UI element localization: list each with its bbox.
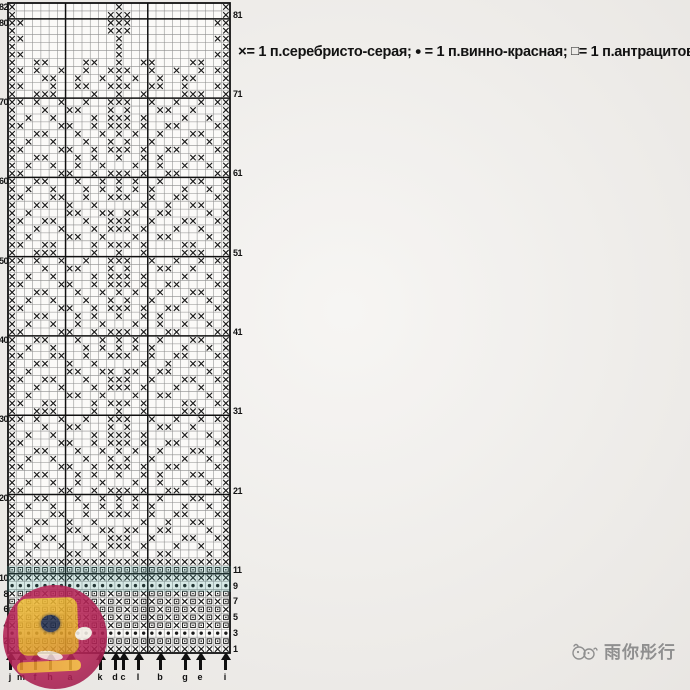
chart-row bbox=[10, 20, 229, 25]
legend-item-anthracite: □= 1 п.антрацитовая bbox=[571, 44, 690, 60]
chart-row bbox=[10, 250, 229, 255]
chart-row bbox=[10, 290, 229, 295]
chart-row bbox=[10, 433, 229, 438]
chart-row bbox=[10, 464, 229, 469]
legend-label-anthracite: = 1 п.антрацитовая bbox=[579, 44, 690, 60]
left-row-number: 8 bbox=[0, 590, 8, 598]
chart-row bbox=[10, 488, 229, 493]
chart-row bbox=[10, 274, 229, 279]
left-row-number: 20 bbox=[0, 494, 8, 502]
chart-row bbox=[10, 195, 229, 200]
right-row-number: 71 bbox=[233, 90, 242, 98]
chart-row bbox=[10, 393, 229, 398]
legend-item-wine: • = 1 п.винно-красная; bbox=[415, 44, 567, 60]
watermark: 雨你彤行 bbox=[570, 638, 676, 663]
right-row-number: 9 bbox=[233, 582, 238, 590]
chart-row bbox=[10, 68, 229, 73]
chart-row bbox=[10, 282, 229, 287]
left-row-number: 60 bbox=[0, 177, 8, 185]
chart-row bbox=[10, 504, 229, 509]
chart-row bbox=[10, 330, 229, 335]
chart-row bbox=[10, 512, 229, 517]
chart-row bbox=[10, 171, 229, 176]
chart-row bbox=[10, 187, 229, 192]
chart-row bbox=[10, 242, 229, 247]
chart-row bbox=[10, 345, 229, 350]
chart-row bbox=[10, 139, 229, 144]
size-letter: c bbox=[120, 672, 125, 682]
chart-row bbox=[10, 227, 229, 232]
chart-row bbox=[10, 528, 229, 533]
chart-row bbox=[10, 108, 229, 113]
chart-row bbox=[10, 425, 229, 430]
right-row-number: 7 bbox=[233, 597, 238, 605]
chart-grid-svg bbox=[7, 2, 231, 654]
chart-row bbox=[10, 353, 229, 358]
circular-logo-sticker bbox=[3, 585, 107, 689]
grid-lines-thin bbox=[8, 3, 230, 653]
left-row-number: 70 bbox=[0, 98, 8, 106]
left-row-number: 40 bbox=[0, 336, 8, 344]
color-legend: ×= 1 п.серебристо-серая; • = 1 п.винно-к… bbox=[238, 41, 688, 61]
sticker-dark-center bbox=[41, 615, 60, 632]
legend-item-silver: ×= 1 п.серебристо-серая; bbox=[238, 44, 412, 60]
chart-row bbox=[10, 219, 229, 224]
chart-row bbox=[10, 131, 229, 136]
chart-row bbox=[10, 5, 229, 10]
chart-row bbox=[10, 552, 229, 557]
chart-row bbox=[10, 76, 229, 81]
left-row-number: 30 bbox=[0, 415, 8, 423]
chart-row bbox=[10, 472, 229, 477]
chart-row bbox=[10, 377, 229, 382]
chart-row bbox=[10, 155, 229, 160]
chart-row bbox=[10, 409, 229, 414]
chart-row bbox=[10, 12, 229, 17]
chart-row bbox=[10, 480, 229, 485]
right-row-number: 31 bbox=[233, 407, 242, 415]
size-letter: b bbox=[157, 672, 163, 682]
dot-stitch-icon: • bbox=[415, 42, 421, 61]
bird-doodle-icon bbox=[570, 640, 600, 662]
chart-row bbox=[10, 298, 229, 303]
chart-row bbox=[10, 84, 229, 89]
chart-row bbox=[10, 401, 229, 406]
chart-row bbox=[10, 544, 229, 549]
right-row-number: 81 bbox=[233, 11, 242, 19]
chart-row bbox=[10, 385, 229, 390]
chart-row bbox=[10, 559, 229, 564]
chart-row bbox=[10, 306, 229, 311]
chart-row bbox=[10, 211, 229, 216]
chart-row bbox=[10, 456, 229, 461]
square-stitch-icon: □ bbox=[571, 43, 579, 58]
chart-row bbox=[10, 234, 229, 239]
chart-row bbox=[10, 567, 228, 572]
chart-row bbox=[10, 496, 229, 501]
chart-row bbox=[10, 36, 229, 41]
chart-row bbox=[10, 369, 229, 374]
right-row-number: 1 bbox=[233, 645, 238, 653]
chart-row bbox=[10, 441, 229, 446]
size-letter: e bbox=[197, 672, 202, 682]
left-row-number: 82 bbox=[0, 3, 8, 11]
left-row-number: 6 bbox=[0, 605, 8, 613]
chart-row bbox=[10, 337, 229, 342]
chart-row bbox=[10, 147, 229, 152]
chart-row bbox=[10, 179, 229, 184]
left-row-number: 50 bbox=[0, 257, 8, 265]
size-letter: i bbox=[224, 672, 227, 682]
right-row-number: 51 bbox=[233, 249, 242, 257]
chart-row bbox=[10, 123, 229, 128]
size-letter: l bbox=[137, 672, 140, 682]
right-row-number: 21 bbox=[233, 487, 242, 495]
right-row-number: 3 bbox=[233, 629, 238, 637]
chart-row bbox=[10, 266, 229, 271]
size-letter: j bbox=[9, 672, 12, 682]
chart-row bbox=[10, 163, 229, 168]
chart-row bbox=[10, 44, 229, 49]
stitch-chart-grid bbox=[7, 2, 231, 654]
legend-label-wine: = 1 п.винно-красная; bbox=[425, 44, 568, 60]
size-letter: k bbox=[97, 672, 102, 682]
chart-row bbox=[10, 536, 229, 541]
knitting-chart-page: ×= 1 п.серебристо-серая; • = 1 п.винно-к… bbox=[0, 0, 690, 690]
right-row-number: 61 bbox=[233, 169, 242, 177]
chart-row bbox=[10, 28, 229, 33]
chart-row bbox=[10, 203, 229, 208]
chart-row bbox=[10, 314, 229, 319]
right-row-number: 5 bbox=[233, 613, 238, 621]
chart-row bbox=[10, 100, 229, 105]
chart-row bbox=[10, 92, 229, 97]
sticker-orange-strip bbox=[17, 659, 81, 673]
right-row-number: 41 bbox=[233, 328, 242, 336]
chart-row bbox=[10, 448, 229, 453]
legend-label-silver: = 1 п.серебристо-серая; bbox=[246, 44, 411, 60]
chart-row bbox=[10, 575, 229, 580]
left-row-number: 10 bbox=[0, 574, 8, 582]
chart-row bbox=[10, 52, 229, 57]
chart-row bbox=[10, 116, 229, 121]
chart-row bbox=[10, 258, 229, 263]
chart-row bbox=[10, 60, 229, 65]
chart-row bbox=[10, 417, 229, 422]
chart-row bbox=[10, 361, 229, 366]
watermark-text: 雨你彤行 bbox=[604, 638, 676, 663]
right-row-number: 11 bbox=[233, 566, 242, 574]
chart-row bbox=[10, 520, 229, 525]
size-letter: g bbox=[182, 672, 188, 682]
chart-row bbox=[10, 322, 229, 327]
size-letter: d bbox=[112, 672, 118, 682]
left-row-number: 80 bbox=[0, 19, 8, 27]
